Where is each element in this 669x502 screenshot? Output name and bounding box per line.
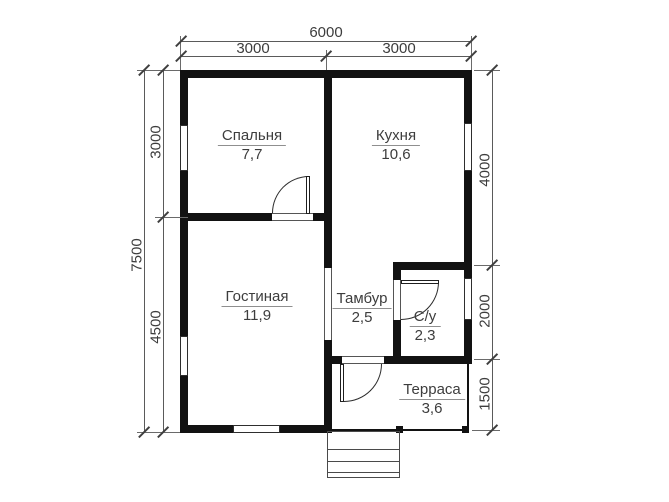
wall-center-vertical	[324, 78, 332, 425]
dimension-line-top-total	[181, 41, 471, 42]
dim-label-width-total: 6000	[309, 25, 342, 40]
kitchen-window	[464, 123, 472, 171]
step-line	[328, 449, 399, 450]
bedroom-door-leaf	[306, 176, 310, 214]
room-label-bedroom: Спальня 7,7	[218, 128, 286, 163]
bathroom-window	[464, 278, 472, 320]
terrace-edge-right	[467, 364, 469, 430]
entrance-steps	[327, 431, 400, 478]
dim-label-height-total: 7500	[130, 238, 145, 271]
dim-label-right-lower: 1500	[478, 377, 493, 410]
room-area: 11,9	[222, 308, 293, 324]
extension-line	[474, 265, 500, 266]
terrace-door-arc	[344, 364, 382, 402]
wall-top	[180, 70, 472, 78]
bedroom-door-opening	[272, 213, 313, 221]
bathroom-door-opening	[393, 280, 401, 320]
extension-line	[472, 430, 500, 431]
room-name: Кухня	[372, 128, 420, 146]
dim-label-width-right: 3000	[382, 41, 415, 56]
extension-line	[474, 70, 500, 71]
living-window-west	[180, 336, 188, 376]
living-vestibule-passage	[324, 268, 332, 340]
extension-line	[474, 359, 500, 360]
bedroom-window	[180, 125, 188, 171]
step-line	[328, 461, 399, 462]
dimension-line-right	[492, 70, 493, 430]
room-name: Гостиная	[222, 289, 293, 307]
dim-label-height-upper: 3000	[149, 125, 164, 158]
room-label-vestibule: Тамбур 2,5	[333, 291, 392, 326]
dim-label-right-upper: 4000	[478, 153, 493, 186]
dim-label-height-lower: 4500	[149, 310, 164, 343]
room-label-bathroom: С/у 2,3	[410, 309, 441, 344]
room-area: 2,5	[333, 310, 392, 326]
room-label-terrace: Терраса 3,6	[399, 382, 465, 417]
room-name: Тамбур	[333, 291, 392, 309]
room-label-kitchen: Кухня 10,6	[372, 128, 420, 163]
bedroom-door-arc	[272, 176, 309, 213]
room-name: С/у	[410, 309, 441, 327]
floor-plan: 6000 3000 3000 7500 3000 4500 4000 2000 …	[0, 0, 669, 502]
terrace-post	[462, 426, 469, 433]
step-line	[328, 472, 399, 473]
wall-kitchen-bathroom	[393, 262, 464, 270]
terrace-door-leaf	[340, 364, 344, 402]
room-area: 7,7	[218, 147, 286, 163]
room-area: 3,6	[399, 401, 465, 417]
room-area: 10,6	[372, 147, 420, 163]
room-name: Спальня	[218, 128, 286, 146]
bathroom-door-leaf	[401, 280, 439, 284]
dim-label-width-left: 3000	[236, 41, 269, 56]
room-area: 2,3	[410, 328, 441, 344]
room-name: Терраса	[399, 382, 465, 400]
room-label-living: Гостиная 11,9	[222, 289, 293, 324]
vestibule-terrace-door-opening	[342, 356, 384, 364]
living-window-south	[233, 425, 280, 433]
dim-label-right-middle: 2000	[478, 294, 493, 327]
